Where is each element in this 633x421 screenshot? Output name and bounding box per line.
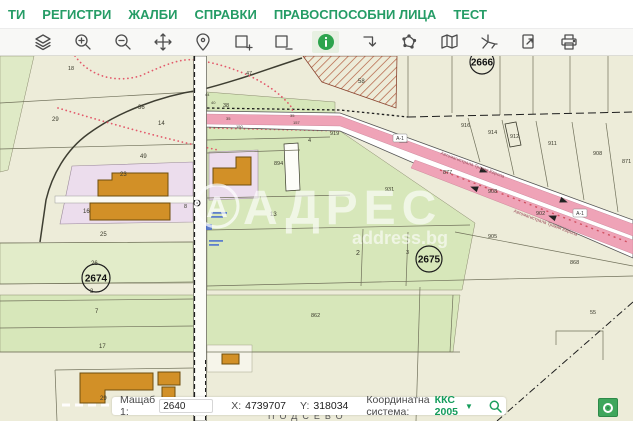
select-area-subtract-tool-button[interactable]: [272, 31, 293, 53]
menu-item-test[interactable]: ТЕСТ: [453, 7, 487, 22]
snap-intersection-tool-button[interactable]: [478, 31, 499, 53]
map-statusbar: Мащаб 1: X: 4739707 Y: 318034 Координатн…: [112, 397, 506, 415]
parcel-number-label: 40: [211, 100, 216, 105]
parcel-number-label: 871: [622, 159, 631, 165]
parcel-number-label: 29: [100, 396, 107, 402]
svg-text:2666: 2666: [471, 58, 494, 69]
crs-select[interactable]: ККС 2005 ▼: [435, 394, 473, 418]
search-icon: [489, 400, 502, 413]
parcel-number-label: 16: [83, 209, 90, 215]
zoom-in-tool-button[interactable]: [72, 31, 93, 53]
menu-item-registers[interactable]: РЕГИСТРИ: [42, 7, 111, 22]
parcel-number-label: 894: [274, 161, 283, 167]
print-tool-button[interactable]: [558, 31, 579, 53]
cadastral-map[interactable]: Автомагистрала Тракия Европа Автомагистр…: [0, 56, 633, 421]
parcel-number-label: 44: [205, 92, 210, 97]
parcel-number-label: 23: [120, 172, 127, 178]
parcel-number-label: 157: [293, 120, 300, 125]
street-layer: [194, 56, 207, 421]
crs-value: ККС 2005: [435, 394, 458, 418]
rect-plus-icon: [233, 32, 253, 52]
parcel-number-label: 18: [68, 66, 74, 72]
parcel-number-label: 902: [536, 211, 545, 217]
pan-icon: [153, 32, 173, 52]
parcel-number-label: 49: [140, 154, 147, 160]
main-menu: ТИ РЕГИСТРИ ЖАЛБИ СПРАВКИ ПРАВОСПОСОБНИ …: [0, 0, 633, 28]
parcel-number-label: 25: [100, 232, 107, 238]
clipped-icon: [0, 32, 13, 52]
info-icon: [316, 32, 336, 52]
clipped-tool-button[interactable]: [0, 31, 13, 53]
scale-input[interactable]: [159, 399, 213, 413]
export-document-tool-button[interactable]: [518, 31, 539, 53]
zoom-out-icon: [113, 32, 133, 52]
polygon-select-tool-button[interactable]: [398, 31, 419, 53]
parcel-number-label: 47: [246, 71, 252, 77]
chevron-down-icon: ▼: [465, 402, 473, 411]
parcel-number-label: 14: [158, 121, 165, 127]
parcel-number-label: 916: [461, 123, 470, 129]
menu-item-complaints[interactable]: ЖАЛБИ: [128, 7, 177, 22]
parcel-number-label: 905: [488, 234, 497, 240]
info-tool-button[interactable]: [312, 31, 339, 53]
zoom-out-tool-button[interactable]: [112, 31, 133, 53]
parcel-number-label: 35: [290, 113, 295, 118]
parcel-number-label: 868: [570, 260, 579, 266]
parcel-number-label: 912: [510, 134, 519, 140]
layers-tool-button[interactable]: [32, 31, 53, 53]
parcel-number-label: 3: [406, 250, 409, 256]
layers-icon: [33, 32, 53, 52]
polygon-icon: [399, 32, 419, 52]
menu-item-references[interactable]: СПРАВКИ: [194, 7, 256, 22]
route-shield: А-1: [573, 209, 587, 217]
parcel-number-label: 38: [223, 103, 229, 109]
parcel-number-label: 914: [488, 130, 497, 136]
parcel-number-label: 58: [358, 79, 365, 85]
rect-minus-icon: [273, 32, 293, 52]
bent-arrow-icon: [359, 32, 379, 52]
parcel-number-label: 36: [138, 105, 145, 111]
parcel-number-label: 150: [236, 124, 243, 129]
measure-tool-button[interactable]: [358, 31, 379, 53]
menu-item-truncated[interactable]: ТИ: [8, 7, 25, 22]
svg-text:А-1: А-1: [576, 211, 584, 217]
parcel-number-label: 911: [548, 141, 557, 147]
scale-label: Мащаб 1:: [120, 394, 155, 418]
svg-text:А-1: А-1: [396, 136, 404, 142]
parcel-number-label: 4: [308, 138, 311, 144]
document-export-icon: [519, 32, 539, 52]
locate-tool-button[interactable]: [192, 31, 213, 53]
svg-text:2675: 2675: [418, 255, 441, 266]
parcel-number-label: 919: [330, 131, 339, 137]
parcel-number-label: 862: [311, 313, 320, 319]
parcel-number-label: 2: [356, 250, 360, 257]
x-label: X:: [231, 400, 241, 412]
route-shield: А-1: [393, 134, 407, 142]
map-sheets-tool-button[interactable]: [438, 31, 459, 53]
zoom-in-icon: [73, 32, 93, 52]
map-settings-button[interactable]: [598, 398, 618, 417]
parcel-number-label: 29: [52, 117, 59, 123]
menu-item-licensed-persons[interactable]: ПРАВОСПОСОБНИ ЛИЦА: [274, 7, 437, 22]
parcel-number-label: 877: [443, 170, 452, 176]
cadastre-app-window: ТИ РЕГИСТРИ ЖАЛБИ СПРАВКИ ПРАВОСПОСОБНИ …: [0, 0, 633, 421]
parcel-number-label: 55: [590, 310, 596, 316]
service-road: [55, 196, 207, 203]
crs-label: Координатна система:: [366, 394, 429, 418]
map-icon: [439, 32, 459, 52]
map-search-button[interactable]: [489, 400, 502, 413]
parcel-number-label: 908: [593, 151, 602, 157]
parcel-number-label: 8: [184, 204, 187, 210]
svg-text:2674: 2674: [85, 274, 108, 285]
x-value: 4739707: [245, 400, 286, 412]
parcel-number-label: 908: [488, 189, 497, 195]
y-value: 318034: [313, 400, 348, 412]
y-label: Y:: [300, 400, 309, 412]
watermark-site: address.bg: [352, 228, 448, 248]
select-area-add-tool-button[interactable]: [232, 31, 253, 53]
intersection-icon: [479, 32, 499, 52]
map-toolbar: [0, 28, 633, 56]
parcel-number-label: 35: [226, 116, 231, 121]
watermark-logo-letter: А: [206, 191, 228, 224]
pan-tool-button[interactable]: [152, 31, 173, 53]
printer-icon: [559, 32, 579, 52]
location-pin-icon: [193, 32, 213, 52]
gear-icon: [602, 402, 614, 414]
parcel-number-label: 17: [99, 344, 106, 350]
